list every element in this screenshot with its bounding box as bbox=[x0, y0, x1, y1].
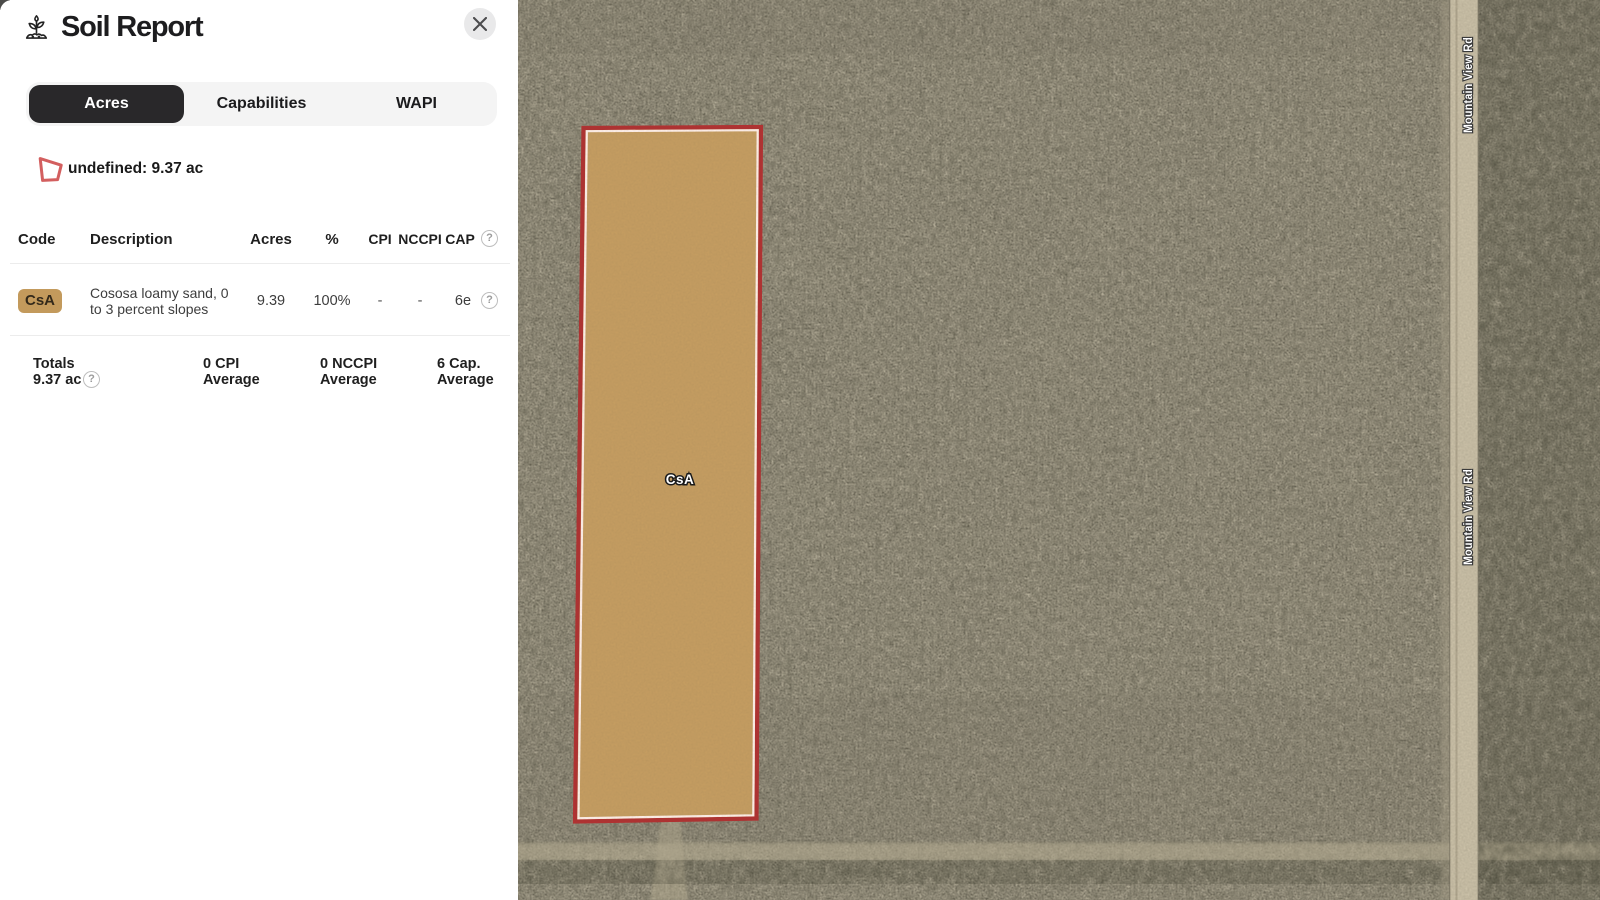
svg-text:Mountain View Rd: Mountain View Rd bbox=[1461, 37, 1475, 133]
svg-text:CsA: CsA bbox=[666, 472, 695, 487]
svg-text:Mountain View Rd: Mountain View Rd bbox=[1461, 469, 1475, 565]
